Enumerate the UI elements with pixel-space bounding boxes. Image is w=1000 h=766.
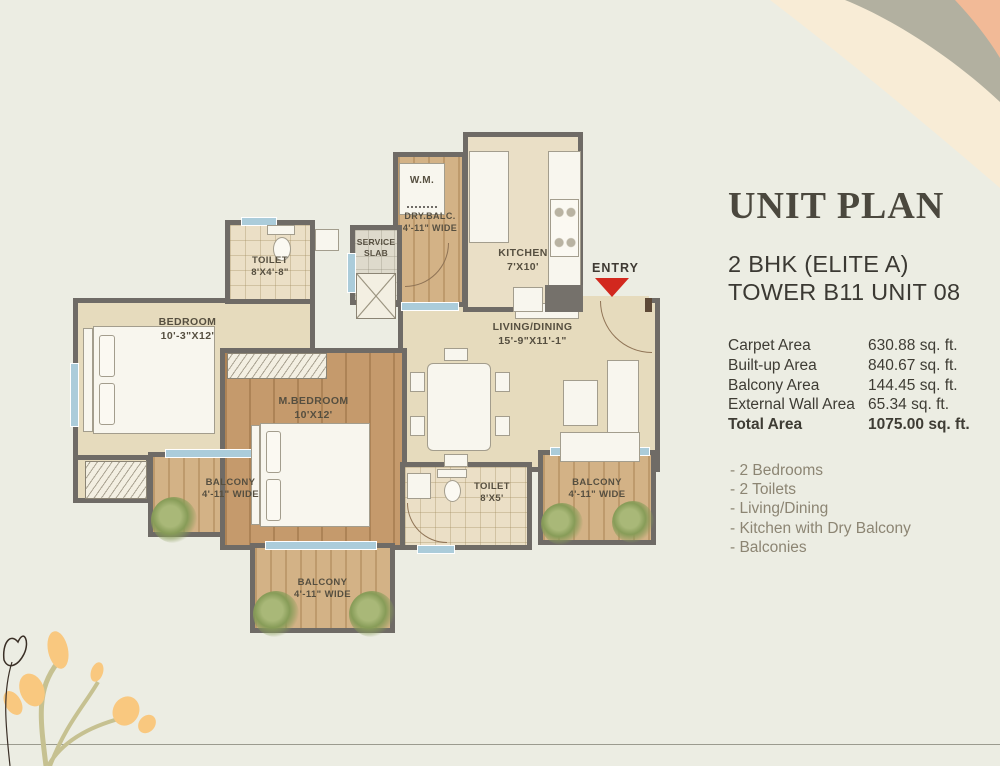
balcony-right-label: BALCONY 4'-11" WIDE (538, 477, 656, 502)
toilet1-basin (315, 229, 339, 251)
unit-type: 2 BHK (ELITE A) (728, 250, 960, 278)
living-dining-label: LIVING/DINING 15'-9"X11'-1" (460, 321, 605, 348)
area-row: Carpet Area 630.88 sq. ft. (728, 336, 978, 356)
kitchen-platform (545, 285, 583, 312)
toilet2-cistern (437, 469, 467, 478)
feature-list: - 2 Bedrooms - 2 Toilets - Living/Dining… (730, 461, 911, 557)
feature-item: - Balconies (730, 538, 911, 557)
toilet2-window (417, 545, 455, 554)
tower-unit: TOWER B11 UNIT 08 (728, 278, 960, 306)
feature-item: - Living/Dining (730, 499, 911, 518)
floor-plan: W.M. ENTRY BEDROOM 10'-3"X12' M.BEDROOM … (55, 125, 670, 670)
entry-door-leaf (645, 298, 652, 312)
service-slab-hatch (356, 273, 396, 319)
unit-subtitle: 2 BHK (ELITE A) TOWER B11 UNIT 08 (728, 250, 960, 306)
master-wardrobe (227, 353, 327, 379)
bedroom-pillow (99, 383, 115, 425)
area-table: Carpet Area 630.88 sq. ft. Built-up Area… (728, 336, 978, 435)
toilet1-label: TOILET 8'X4'-8" (227, 255, 313, 280)
armchair (563, 380, 598, 426)
area-row: External Wall Area 65.34 sq. ft. (728, 395, 978, 415)
dining-chair (410, 416, 425, 436)
feature-item: - 2 Bedrooms (730, 461, 911, 480)
kitchen-counter (469, 151, 509, 243)
unit-plan-page: W.M. ENTRY BEDROOM 10'-3"X12' M.BEDROOM … (0, 0, 1000, 766)
toilet1-cistern (267, 225, 295, 235)
service-slab-label: SERVICE SLAB (350, 237, 402, 259)
bedroom-window (70, 363, 79, 427)
bedroom-wardrobe (85, 461, 147, 499)
dry-balcony-label: DRY.BALC. 4'-11" WIDE (391, 211, 469, 234)
washing-machine-label: W.M. (400, 174, 444, 187)
plant (151, 497, 197, 543)
feature-item: - Kitchen with Dry Balcony (730, 519, 911, 538)
bedroom-headboard (83, 328, 93, 432)
dining-chair (444, 454, 468, 467)
dining-chair (444, 348, 468, 361)
toilet2-basin (407, 473, 431, 499)
balcony-left-label: BALCONY 4'-11" WIDE (148, 477, 313, 502)
area-row-total: Total Area 1075.00 sq. ft. (728, 415, 978, 435)
area-row: Balcony Area 144.45 sq. ft. (728, 376, 978, 396)
area-row: Built-up Area 840.67 sq. ft. (728, 356, 978, 376)
bedroom-label: BEDROOM 10'-3"X12' (80, 316, 295, 343)
balcony-bottom-label: BALCONY 4'-11" WIDE (250, 577, 395, 602)
dining-table (427, 363, 491, 451)
feature-item: - 2 Toilets (730, 480, 911, 499)
sofa-section (560, 432, 640, 462)
toilet2-label: TOILET 8'X5' (455, 481, 529, 506)
master-bedroom-label: M.BEDROOM 10'X12' (220, 395, 407, 422)
dining-chair (495, 372, 510, 392)
dining-chair (495, 416, 510, 436)
washing-machine-dots (407, 206, 437, 208)
dining-chair (410, 372, 425, 392)
plant (612, 501, 654, 543)
washing-machine: W.M. (399, 163, 445, 215)
page-title: UNIT PLAN (728, 184, 944, 228)
kitchen-label: KITCHEN 7'X10' (463, 247, 583, 274)
plant (541, 503, 583, 545)
drybalc-window (401, 302, 459, 311)
balcony-bottom-window (265, 541, 377, 550)
master-pillow (266, 431, 281, 473)
entry-arrow-icon (595, 278, 629, 297)
master-headboard (251, 425, 260, 525)
entry-label: ENTRY (592, 261, 639, 275)
kitchen-cabinet (513, 287, 543, 312)
